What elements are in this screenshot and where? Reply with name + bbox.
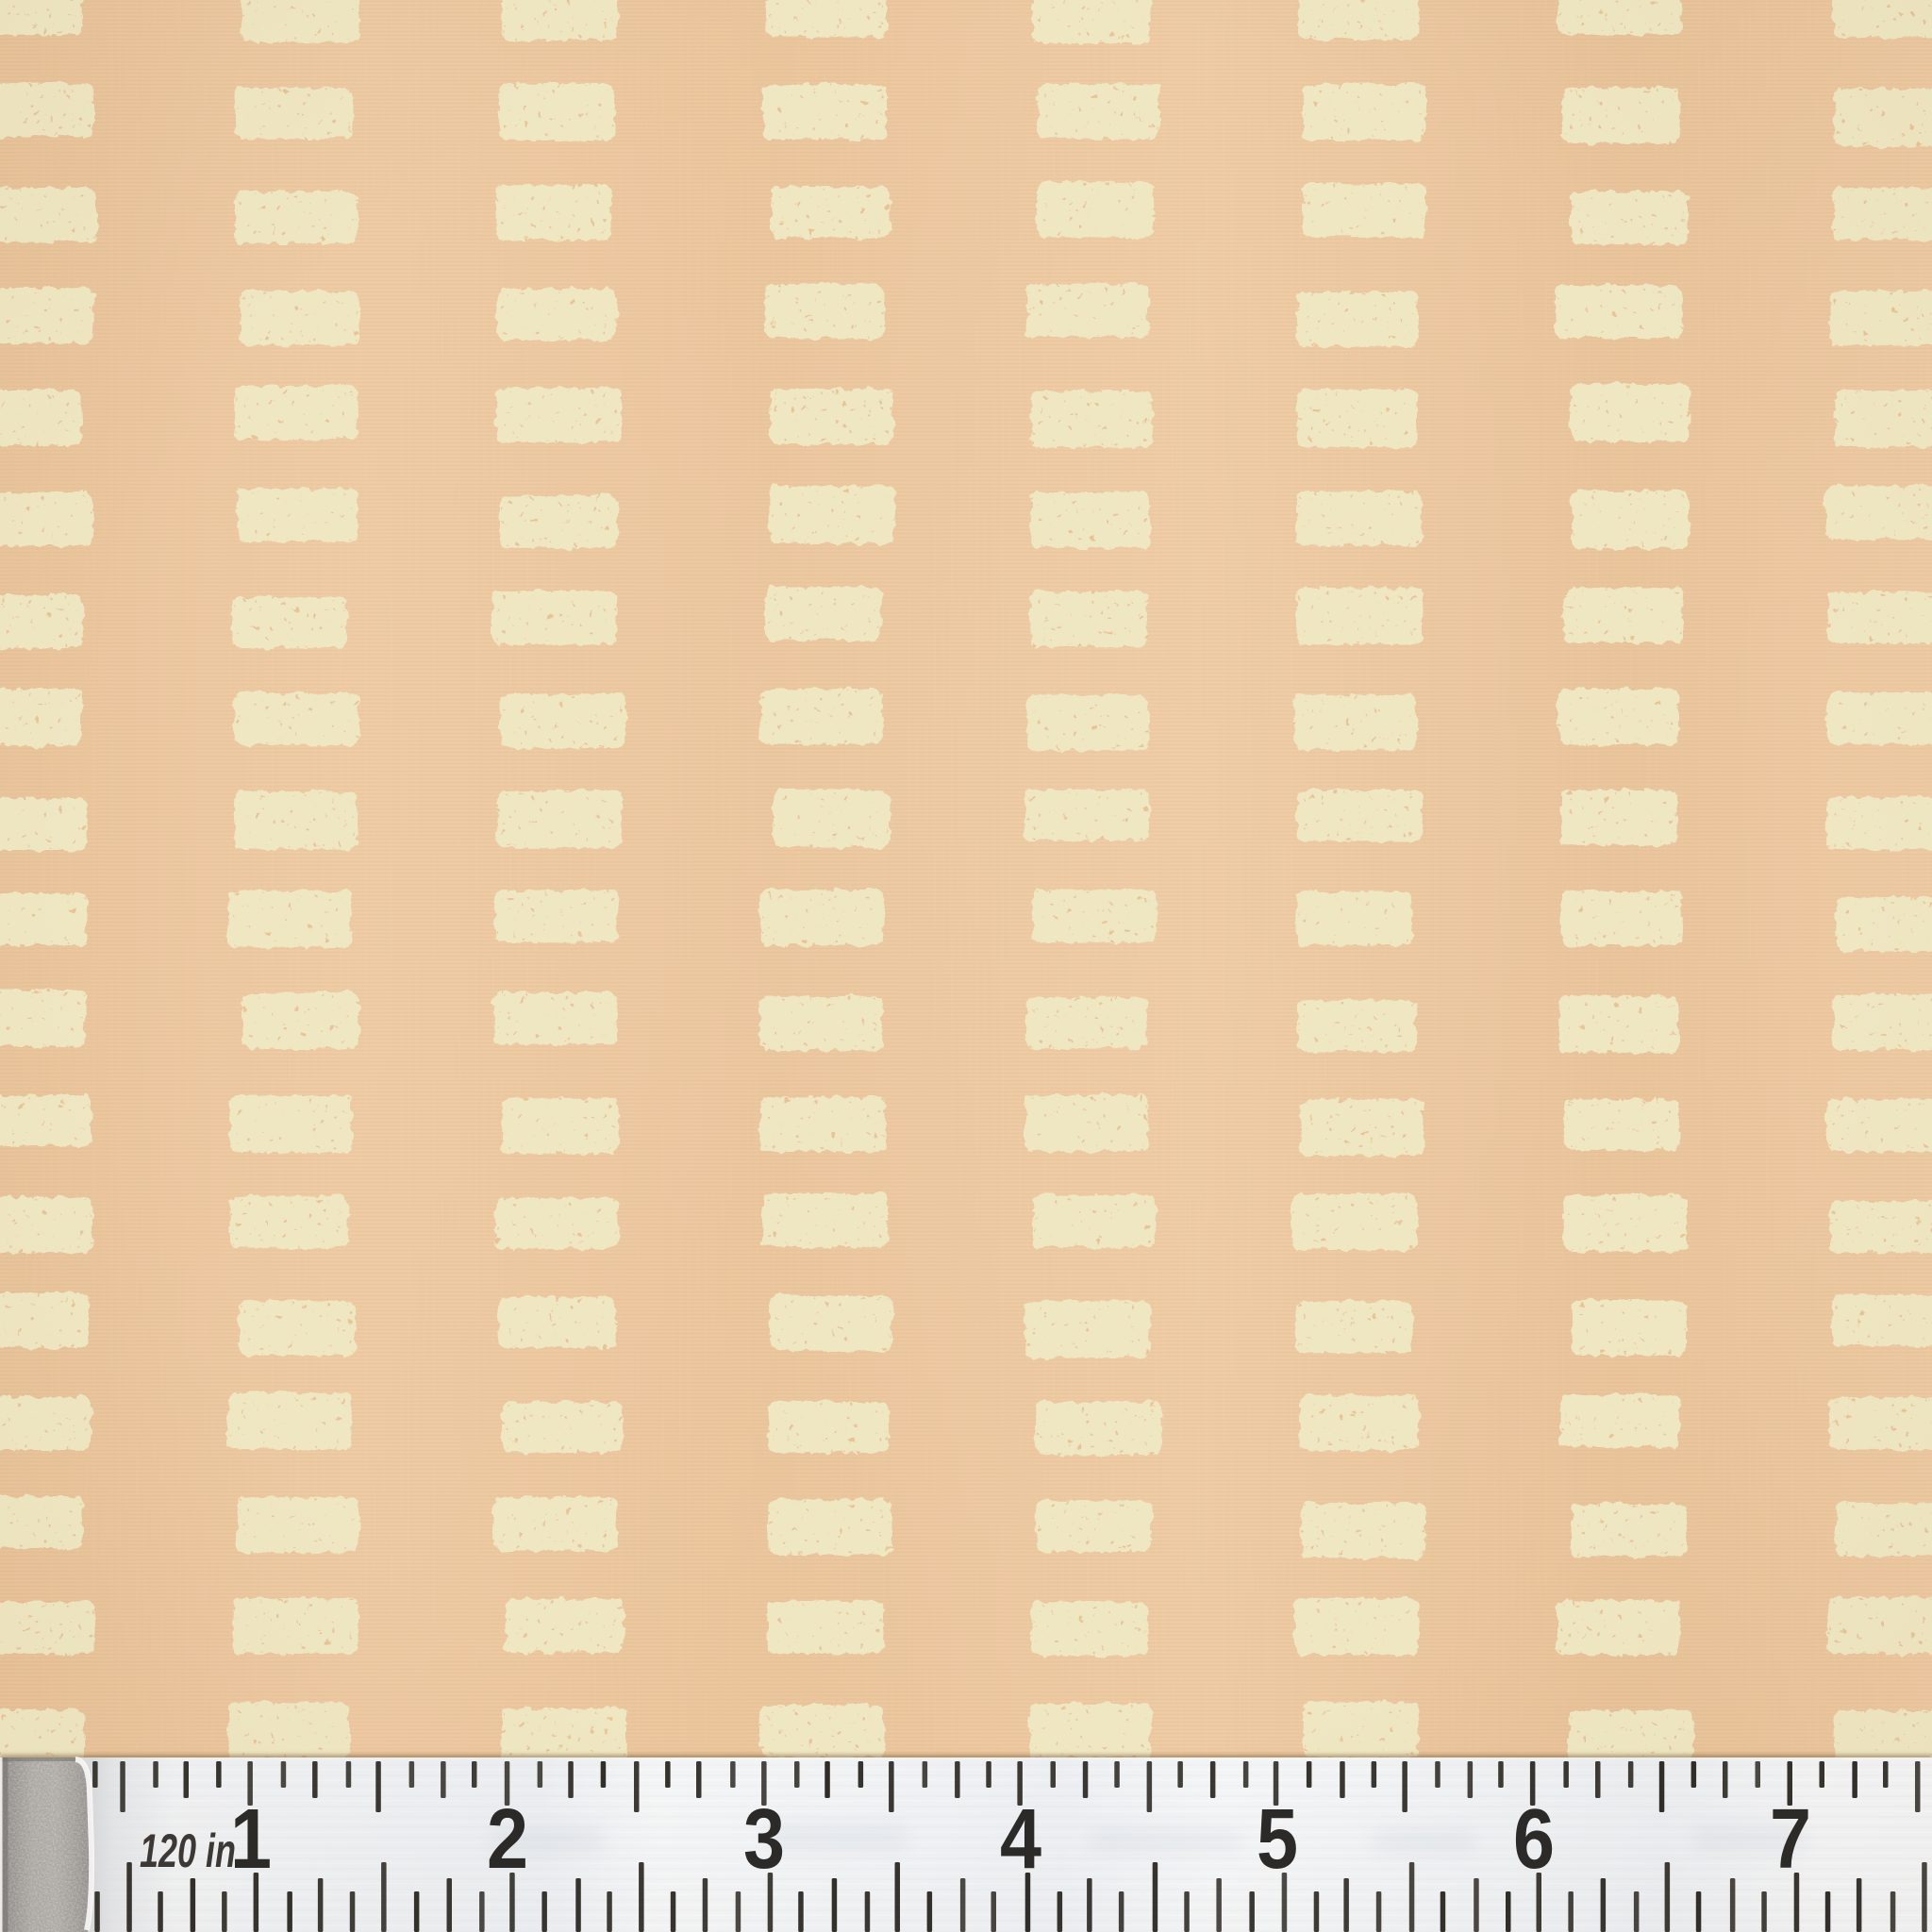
svg-text:1: 1 (230, 1790, 272, 1886)
svg-text:7: 7 (1770, 1790, 1811, 1886)
svg-text:2: 2 (487, 1790, 528, 1886)
svg-text:5: 5 (1257, 1790, 1298, 1886)
svg-text:3: 3 (743, 1790, 785, 1886)
svg-text:4: 4 (1000, 1790, 1041, 1886)
svg-text:6: 6 (1513, 1790, 1555, 1886)
svg-text:120 in: 120 in (140, 1825, 236, 1877)
